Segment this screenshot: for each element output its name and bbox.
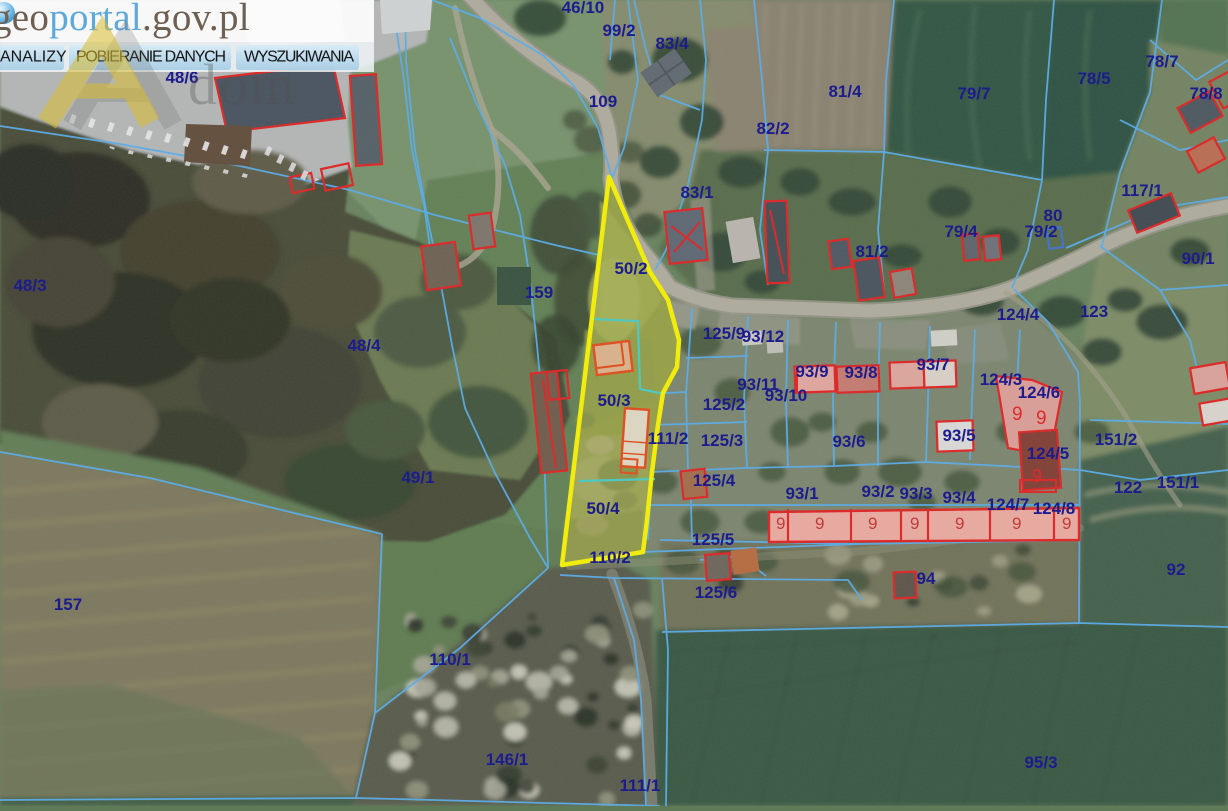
svg-text:111/1: 111/1 <box>620 776 661 795</box>
svg-text:50/4: 50/4 <box>586 499 620 518</box>
svg-text:151/2: 151/2 <box>1095 430 1138 449</box>
svg-text:dom: dom <box>188 52 297 117</box>
svg-text:81/2: 81/2 <box>855 242 888 261</box>
svg-text:48/4: 48/4 <box>347 336 381 355</box>
svg-text:93/9: 93/9 <box>795 362 828 381</box>
svg-text:50/2: 50/2 <box>614 259 647 278</box>
svg-text:146/1: 146/1 <box>486 750 529 769</box>
svg-text:92: 92 <box>1167 560 1186 579</box>
svg-text:159: 159 <box>525 283 553 302</box>
svg-text:81/4: 81/4 <box>828 82 862 101</box>
svg-text:125/9: 125/9 <box>703 324 746 343</box>
svg-text:ANALIZY: ANALIZY <box>0 49 67 66</box>
svg-text:93/3: 93/3 <box>899 484 932 503</box>
svg-text:125/4: 125/4 <box>693 471 736 490</box>
svg-text:125/2: 125/2 <box>703 395 746 414</box>
svg-text:93/4: 93/4 <box>942 488 976 507</box>
svg-text:93/6: 93/6 <box>832 432 865 451</box>
svg-text:93/2: 93/2 <box>861 482 894 501</box>
svg-text:124/4: 124/4 <box>997 305 1040 324</box>
svg-text:111/2: 111/2 <box>648 429 689 448</box>
svg-text:82/2: 82/2 <box>756 119 789 138</box>
svg-text:124/3: 124/3 <box>980 370 1023 389</box>
svg-text:93/10: 93/10 <box>765 386 808 405</box>
svg-text:46/10: 46/10 <box>562 0 605 17</box>
svg-text:95/3: 95/3 <box>1024 753 1057 772</box>
svg-text:79/4: 79/4 <box>944 222 978 241</box>
svg-text:93/1: 93/1 <box>785 484 818 503</box>
svg-text:78/7: 78/7 <box>1145 52 1178 71</box>
svg-text:124/8: 124/8 <box>1033 499 1076 518</box>
svg-text:79/2: 79/2 <box>1024 222 1057 241</box>
svg-text:48/3: 48/3 <box>13 276 46 295</box>
svg-text:94: 94 <box>917 569 936 588</box>
svg-text:79/7: 79/7 <box>957 84 990 103</box>
svg-text:157: 157 <box>54 595 82 614</box>
svg-text:109: 109 <box>589 92 617 111</box>
svg-text:99/2: 99/2 <box>602 21 635 40</box>
svg-text:125/3: 125/3 <box>701 431 744 450</box>
svg-text:49/1: 49/1 <box>401 468 434 487</box>
svg-text:90/1: 90/1 <box>1181 249 1214 268</box>
svg-text:124/5: 124/5 <box>1027 444 1070 463</box>
svg-text:124/7: 124/7 <box>987 495 1030 514</box>
svg-text:124/6: 124/6 <box>1018 383 1061 402</box>
svg-text:110/1: 110/1 <box>429 650 471 669</box>
svg-text:83/1: 83/1 <box>680 183 713 202</box>
svg-text:93/12: 93/12 <box>742 327 785 346</box>
svg-text:125/6: 125/6 <box>695 583 738 602</box>
svg-text:83/4: 83/4 <box>655 34 689 53</box>
svg-text:110/2: 110/2 <box>589 548 631 567</box>
svg-text:78/8: 78/8 <box>1189 84 1222 103</box>
svg-text:123: 123 <box>1080 302 1108 321</box>
svg-text:50/3: 50/3 <box>597 391 630 410</box>
svg-text:151/1: 151/1 <box>1157 473 1200 492</box>
svg-text:93/8: 93/8 <box>844 363 877 382</box>
svg-text:78/5: 78/5 <box>1077 69 1110 88</box>
svg-text:93/7: 93/7 <box>916 355 949 374</box>
svg-text:125/5: 125/5 <box>692 530 735 549</box>
svg-text:117/1: 117/1 <box>1121 181 1163 200</box>
svg-text:93/5: 93/5 <box>942 426 975 445</box>
svg-text:122: 122 <box>1114 478 1142 497</box>
